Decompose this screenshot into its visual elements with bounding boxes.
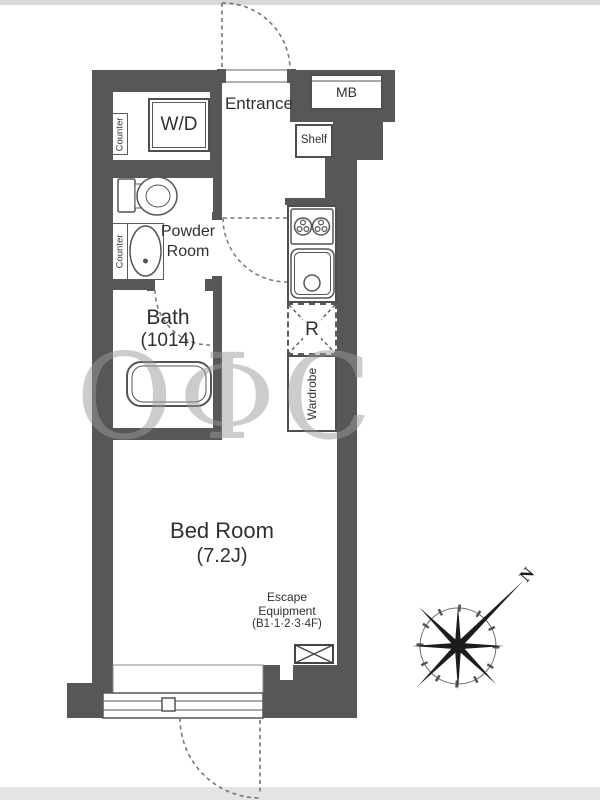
door-hinge-block [212,276,222,284]
powder-room-label-line1: Powder [150,222,226,242]
window-sill [113,665,263,693]
toilet-bowl [137,177,177,215]
watermark: OΦC [76,338,378,456]
bedroom-size-label: (7.2J) [122,544,322,569]
entrance-threshold [222,70,290,82]
powder-room-label: Powder Room [150,222,226,262]
door-hinge-block [147,279,155,291]
escape-label-line2: Equipment [225,605,349,619]
basin-drain [143,259,148,264]
entrance-label: Entrance [214,94,304,114]
window-frame [103,693,263,718]
powder-door-swing-arc [223,218,287,282]
refrigerator-label: R [303,319,321,340]
door-hinge-block [287,69,296,83]
escape-label-line3: (B1·1·2·3·4F) [225,618,349,632]
powder-room-label-line2: Room [150,242,226,262]
window-handle [162,698,175,711]
refrigerator-label-wrap: R [298,319,326,341]
bedroom-label: Bed Room [122,518,322,544]
bath-label: Bath [118,306,218,330]
compass-north-label: N [516,563,539,585]
escape-label-line1: Escape [225,591,349,605]
escape-equipment-label-group: Escape Equipment (B1·1·2·3·4F) [225,591,349,632]
bedroom-label-group: Bed Room (7.2J) [122,518,322,569]
toilet-tank [118,179,135,212]
bath-size-label: (1014) [118,330,218,352]
door-hinge-block [212,212,222,220]
floor-plan: MB Shelf W/D Counter Counter Wardrobe [0,0,600,800]
entrance-door-swing-arc [222,3,290,70]
door-hinge-block [217,69,226,83]
bath-label-group: Bath (1014) [118,306,218,352]
compass-rose: N [412,563,538,690]
door-hinge-block [205,279,213,291]
terrace-door-swing-arc [180,718,260,798]
